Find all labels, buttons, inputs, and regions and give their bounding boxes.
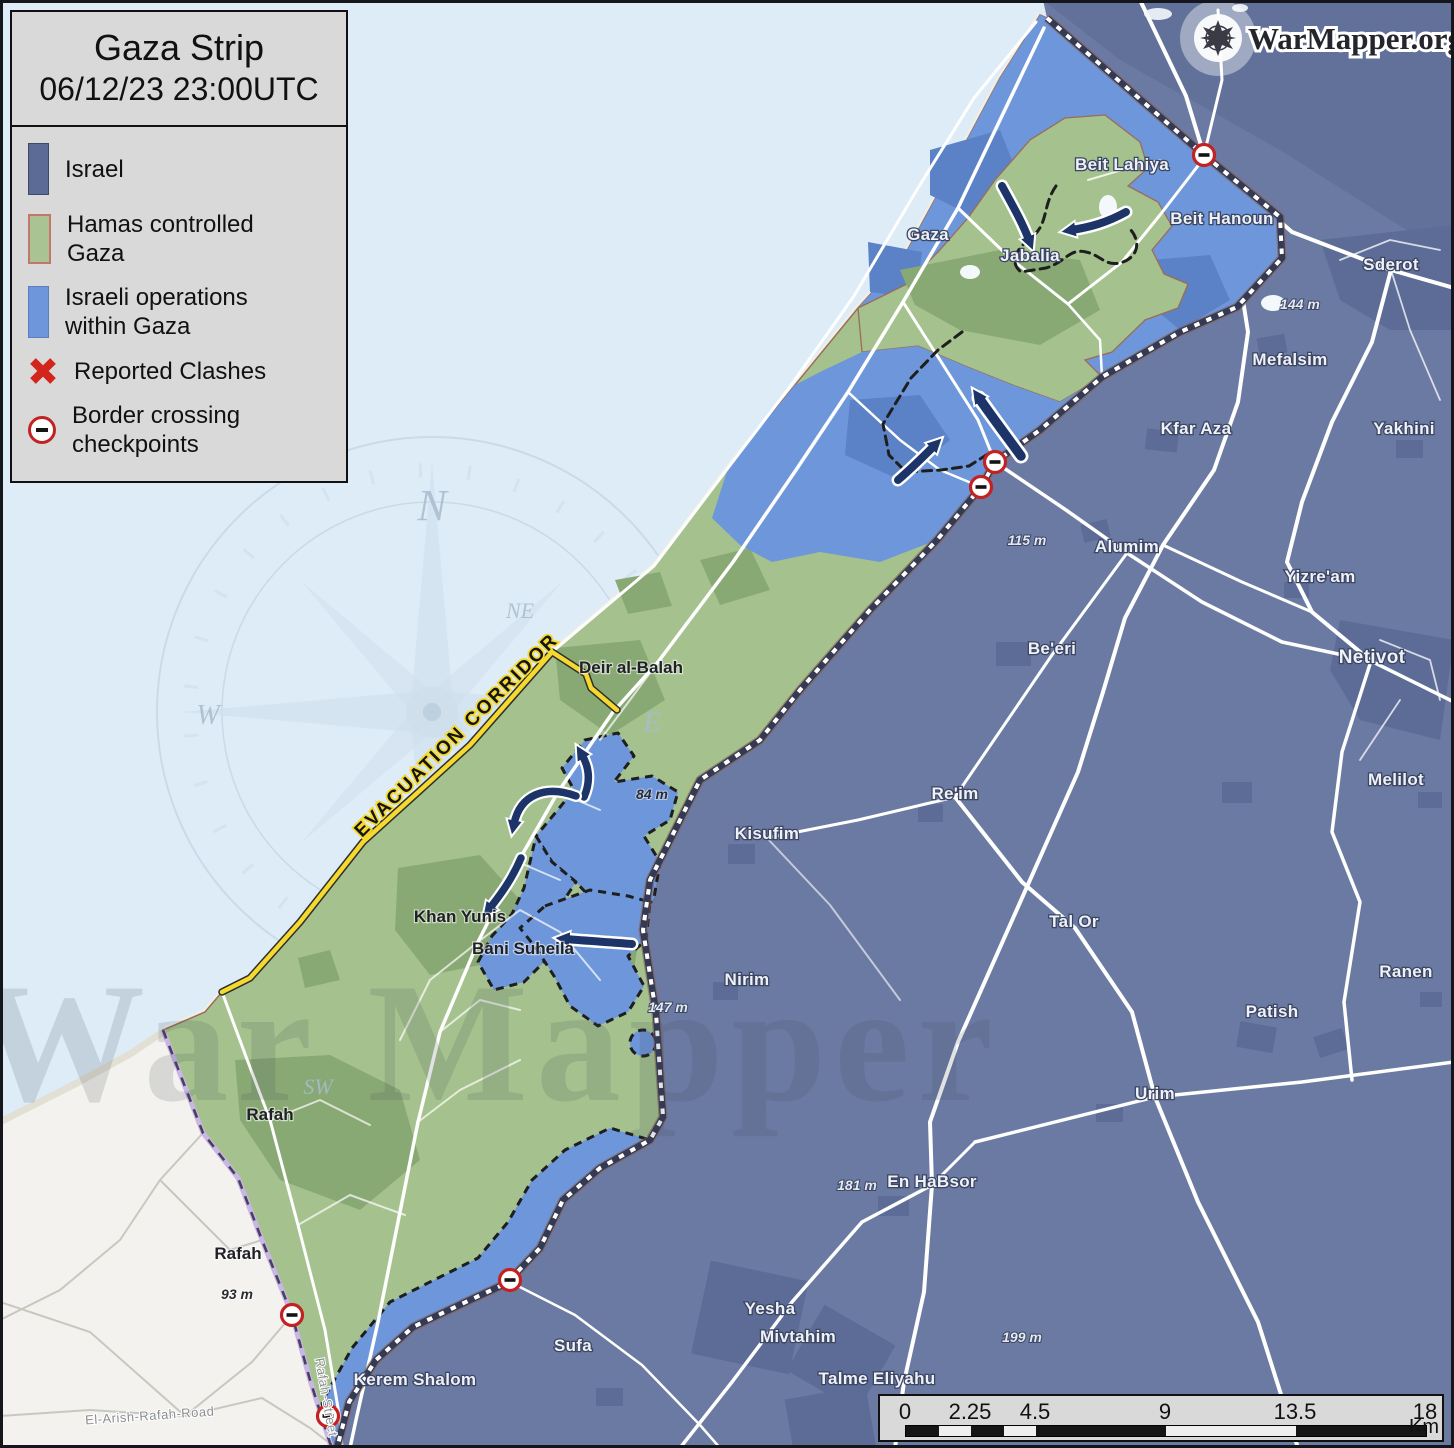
legend-item-hamas-gaza: Hamas controlled Gaza (28, 210, 332, 268)
map-label-rafah-gaza: Rafah (246, 1105, 293, 1124)
scale-unit: Km (1409, 1416, 1439, 1439)
map-screenshot: War Mapper EVACUATION CORRIDOR Beit Lahi… (0, 0, 1454, 1448)
title-legend-panel: Gaza Strip 06/12/23 23:00UTC Israel Hama… (10, 10, 348, 483)
map-label-compass-n: N (416, 481, 449, 530)
checkpoint-icon (28, 416, 56, 444)
border-checkpoint-marker (500, 1270, 521, 1291)
map-label-melilot: Melilot (1368, 770, 1424, 789)
clash-icon (28, 356, 58, 386)
scale-tick: 0 (899, 1399, 911, 1425)
legend-item-checkpoints: Border crossing checkpoints (28, 401, 332, 459)
legend-item-clashes: Reported Clashes (28, 356, 332, 386)
map-label-beit-lahiya: Beit Lahiya (1075, 155, 1169, 174)
map-label-elev-181: 181 m (837, 1177, 877, 1193)
map-label-reim: Re'im (931, 784, 978, 803)
border-checkpoint-marker (971, 477, 992, 498)
map-label-compass-e: E (642, 706, 661, 739)
map-label-yesha: Yesha (745, 1299, 796, 1318)
brand-name: WarMapper.org (1248, 21, 1454, 56)
map-timestamp: 06/12/23 23:00UTC (18, 69, 340, 109)
map-label-tal-or: Tal Or (1049, 912, 1099, 931)
legend: Israel Hamas controlled Gaza Israeli ope… (12, 127, 346, 481)
map-label-yizream: Yizre'am (1284, 567, 1355, 586)
legend-item-israel: Israel (28, 143, 332, 195)
map-label-kisufim: Kisufim (735, 824, 799, 843)
attack-arrow (566, 939, 632, 944)
title-panel: Gaza Strip 06/12/23 23:00UTC (12, 12, 346, 127)
attack-arrow (582, 755, 588, 797)
map-label-elev-93: 93 m (221, 1286, 253, 1302)
map-label-jabalia: Jabalia (1000, 246, 1060, 265)
map-label-sufa: Sufa (554, 1336, 592, 1355)
map-label-talme-eliyahu: Talme Eliyahu (819, 1369, 936, 1388)
border-checkpoint-marker (1194, 145, 1215, 166)
scale-bar: 0 2.25 4.5 9 13.5 18 Km (878, 1394, 1444, 1442)
legend-item-israeli-ops: Israeli operations within Gaza (28, 283, 332, 341)
map-label-mefalsim: Mefalsim (1252, 350, 1327, 369)
map-label-kerem-shalom: Kerem Shalom (354, 1370, 477, 1389)
map-label-compass-ne: NE (505, 598, 535, 623)
map-label-ranen: Ranen (1379, 962, 1432, 981)
map-label-elev-144: 144 m (1280, 296, 1320, 312)
legend-label: Israeli operations within Gaza (65, 283, 295, 341)
scale-tick: 4.5 (1020, 1399, 1051, 1425)
map-label-rafah-egypt: Rafah (214, 1244, 261, 1263)
map-label-netivot: Netivot (1339, 647, 1406, 668)
israeli-ops-swatch (28, 286, 49, 338)
israel-swatch (28, 143, 49, 195)
map-label-patish: Patish (1246, 1002, 1299, 1021)
border-checkpoint-marker (282, 1305, 303, 1326)
map-label-alumim: Alumim (1095, 537, 1159, 556)
map-label-compass-sw: SW (303, 1074, 334, 1099)
map-label-nirim: Nirim (725, 970, 770, 989)
map-label-sderot: Sderot (1363, 255, 1419, 274)
map-label-bani-suheila: Bani Suheila (472, 939, 575, 958)
scale-tick: 9 (1159, 1399, 1171, 1425)
map-label-mivtahim: Mivtahim (760, 1327, 836, 1346)
scale-tick: 2.25 (949, 1399, 992, 1425)
legend-label: Border crossing checkpoints (72, 401, 282, 459)
scale-bar-segments (905, 1425, 1427, 1437)
legend-label: Israel (65, 155, 124, 184)
map-label-yakhini: Yakhini (1373, 419, 1435, 438)
legend-label: Hamas controlled Gaza (67, 210, 277, 268)
map-label-khan-yunis: Khan Yunis (414, 907, 506, 926)
map-title: Gaza Strip (18, 26, 340, 69)
map-label-kfar-aza: Kfar Aza (1161, 419, 1232, 438)
map-label-deir-al-balah: Deir al-Balah (579, 658, 683, 677)
map-label-urim: Urim (1135, 1084, 1175, 1103)
border-checkpoint-marker (985, 452, 1006, 473)
warmapper-watermark: War Mapper (0, 949, 1001, 1137)
map-label-elev-84: 84 m (636, 786, 668, 802)
map-label-gaza-city: Gaza (907, 225, 949, 244)
map-label-beit-hanoun: Beit Hanoun (1170, 209, 1273, 228)
map-label-compass-w: W (196, 700, 222, 731)
scale-tick: 13.5 (1274, 1399, 1317, 1425)
hamas-gaza-swatch (28, 214, 51, 264)
legend-label: Reported Clashes (74, 357, 266, 386)
map-label-en-habsor: En HaBsor (887, 1172, 977, 1191)
map-label-beeri: Be'eri (1028, 639, 1076, 658)
map-label-elev-199: 199 m (1002, 1329, 1042, 1345)
map-label-elev-115: 115 m (1008, 532, 1047, 548)
map-label-elev-147: 147 m (648, 999, 688, 1015)
